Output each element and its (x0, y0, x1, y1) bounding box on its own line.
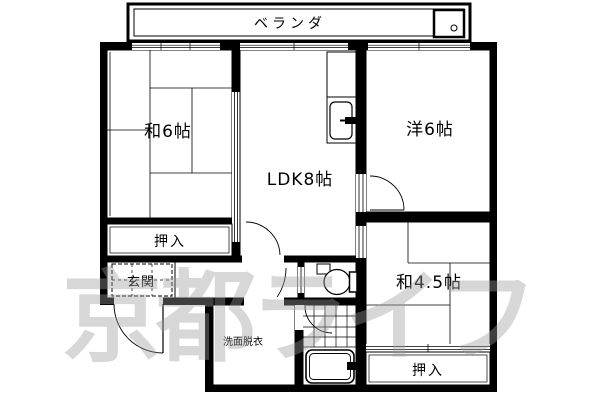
watermark-kyoto-life: 京都ライフ (62, 259, 532, 376)
room-label-ldk: LDK8帖 (267, 170, 334, 190)
room-label-yoshitsu6: 洋6帖 (406, 120, 454, 140)
veranda-label: ベランダ (254, 16, 326, 32)
window-ldk (240, 43, 348, 50)
floorplan-drawing: ベランダ 和6帖 (0, 0, 600, 400)
door-opening-yoshitsu6 (356, 174, 366, 212)
room-yoshitsu6: 洋6帖 (356, 50, 490, 212)
closet-upper: 押入 (107, 224, 232, 256)
window-washitsu6 (132, 43, 220, 50)
room-label-oshiire-upper: 押入 (154, 234, 186, 250)
sliding-door-washitsu6-ldk (232, 92, 240, 242)
veranda-utility-box (434, 10, 464, 37)
veranda: ベランダ (128, 4, 470, 41)
sliding-door-washitsu45 (356, 226, 366, 258)
room-washitsu6: 和6帖 (107, 50, 232, 218)
windows-top-wall (132, 43, 470, 50)
room-label-washitsu6: 和6帖 (144, 122, 192, 142)
window-yoshitsu6 (368, 43, 470, 50)
kitchen-counter (327, 52, 358, 143)
floorplan-canvas: ベランダ 和6帖 (0, 0, 600, 400)
room-ldk: LDK8帖 (240, 50, 358, 256)
